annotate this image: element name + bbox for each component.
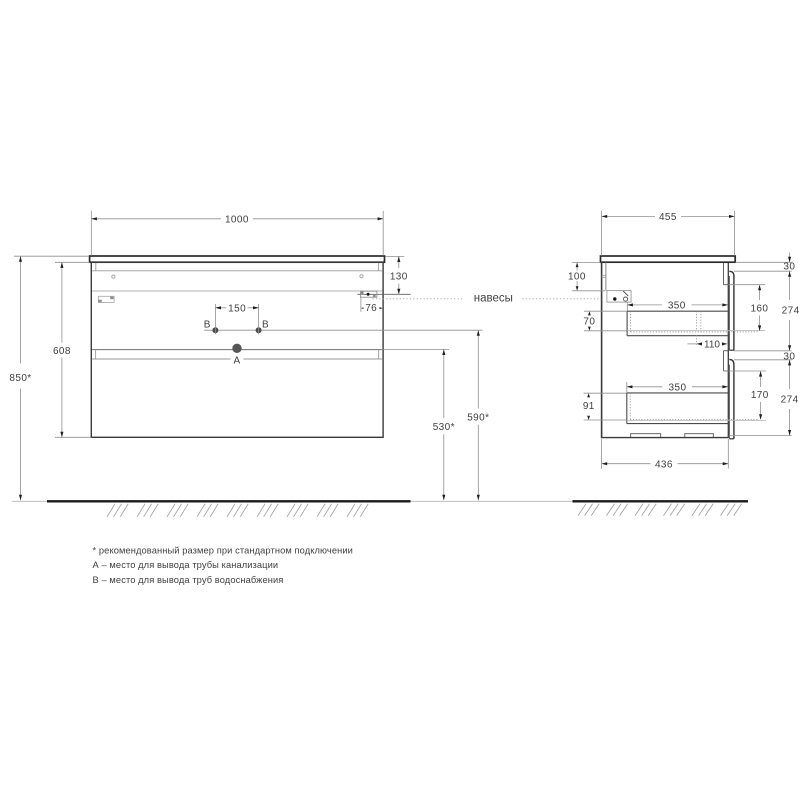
svg-text:850*: 850*: [9, 373, 31, 384]
svg-text:436: 436: [655, 459, 673, 470]
svg-text:274: 274: [781, 395, 799, 406]
svg-text:навесы: навесы: [474, 293, 513, 305]
svg-text:А – место для вывода трубы кан: А – место для вывода трубы канализации: [93, 560, 279, 570]
svg-text:70: 70: [583, 316, 595, 327]
svg-text:274: 274: [782, 306, 800, 317]
svg-text:150: 150: [228, 303, 246, 314]
svg-text:A: A: [233, 355, 240, 366]
svg-text:530*: 530*: [433, 422, 455, 433]
svg-text:608: 608: [53, 346, 71, 357]
svg-text:30: 30: [783, 262, 795, 273]
svg-text:590*: 590*: [467, 413, 489, 424]
svg-text:1000: 1000: [225, 215, 249, 226]
svg-text:B: B: [204, 320, 211, 331]
svg-text:110: 110: [704, 340, 720, 351]
svg-text:В – место для вывода труб водо: В – место для вывода труб водоснабжения: [93, 575, 284, 585]
svg-text:130: 130: [390, 272, 408, 283]
svg-text:* рекомендованный размер при с: * рекомендованный размер при стандартном…: [93, 545, 353, 555]
svg-text:76: 76: [365, 303, 377, 314]
svg-text:91: 91: [583, 401, 595, 412]
svg-text:350: 350: [668, 301, 686, 312]
svg-text:B: B: [262, 320, 269, 331]
svg-text:455: 455: [659, 212, 677, 223]
svg-text:170: 170: [751, 390, 769, 401]
svg-text:100: 100: [568, 272, 586, 283]
svg-text:350: 350: [669, 383, 687, 394]
svg-text:160: 160: [750, 304, 768, 315]
